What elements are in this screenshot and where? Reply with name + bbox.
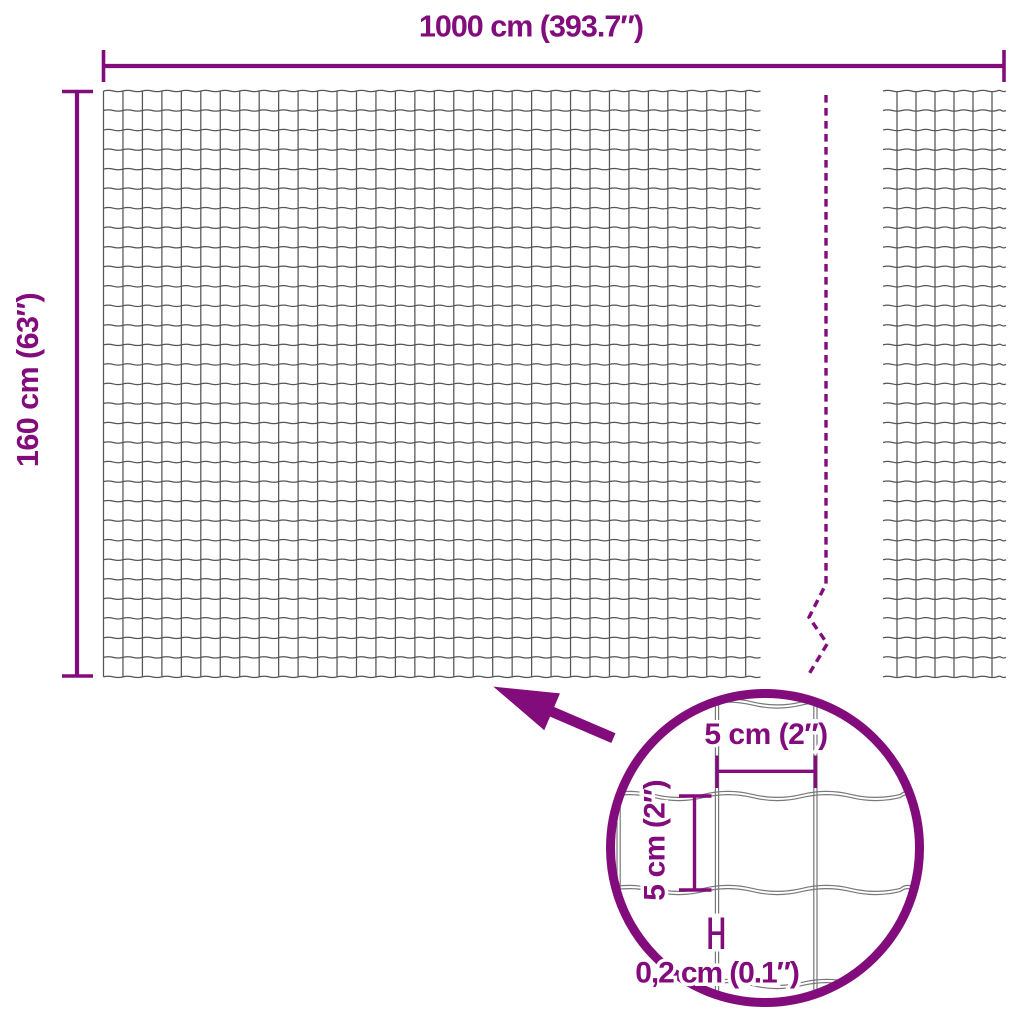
svg-text:5 cm (2″): 5 cm (2″) — [639, 780, 672, 901]
svg-text:5 cm (2″): 5 cm (2″) — [704, 718, 827, 751]
svg-text:160 cm (63″): 160 cm (63″) — [11, 293, 45, 467]
svg-text:0,2 cm (0.1″): 0,2 cm (0.1″) — [635, 957, 799, 990]
svg-text:1000 cm (393.7″): 1000 cm (393.7″) — [419, 10, 643, 44]
